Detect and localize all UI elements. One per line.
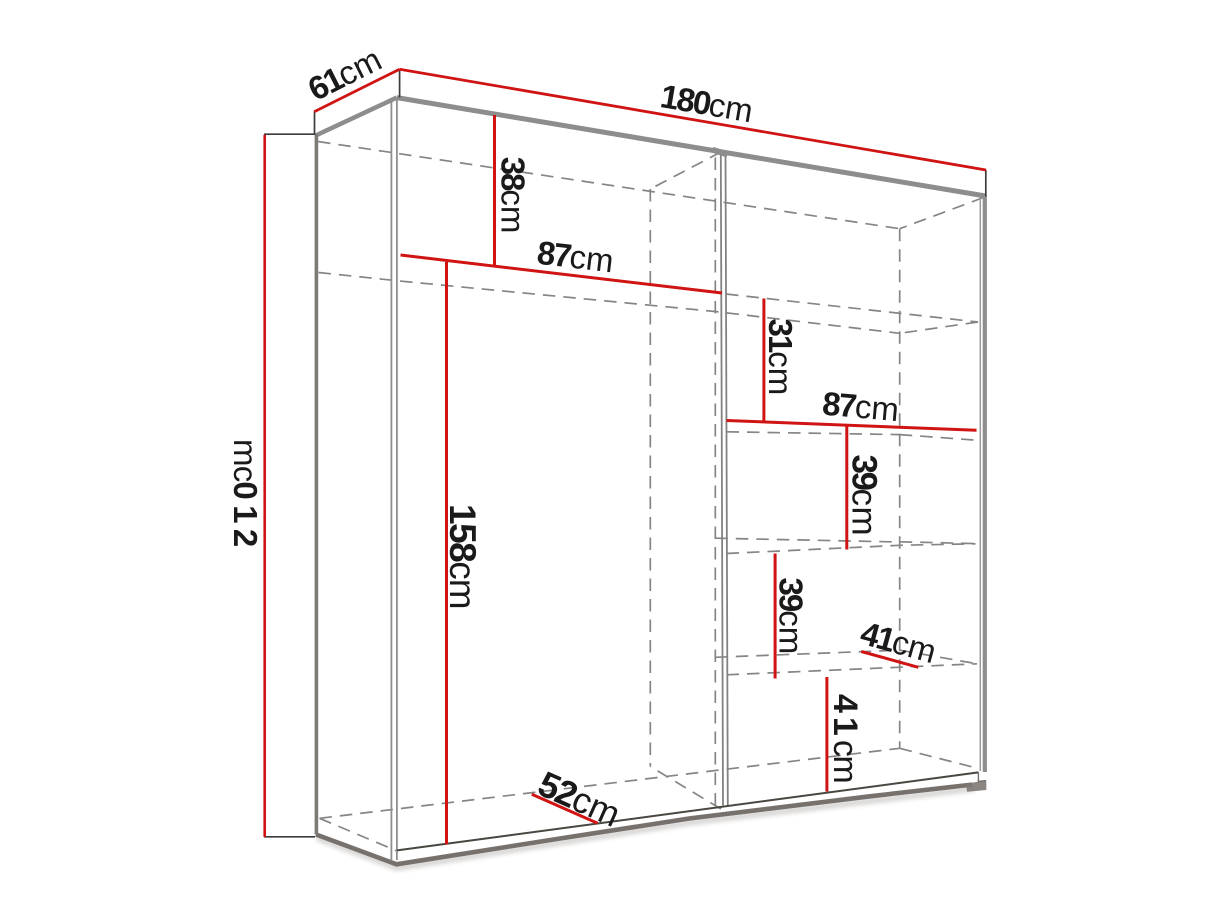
svg-text:41cm: 41cm bbox=[826, 694, 864, 782]
svg-text:158cm: 158cm bbox=[442, 504, 483, 609]
svg-text:31cm: 31cm bbox=[762, 319, 799, 396]
svg-text:39cm: 39cm bbox=[773, 578, 810, 655]
svg-text:38cm: 38cm bbox=[494, 157, 531, 234]
svg-text:87cm: 87cm bbox=[821, 385, 901, 429]
svg-text:39cm: 39cm bbox=[845, 455, 884, 537]
svg-text:mc012: mc012 bbox=[227, 439, 264, 553]
